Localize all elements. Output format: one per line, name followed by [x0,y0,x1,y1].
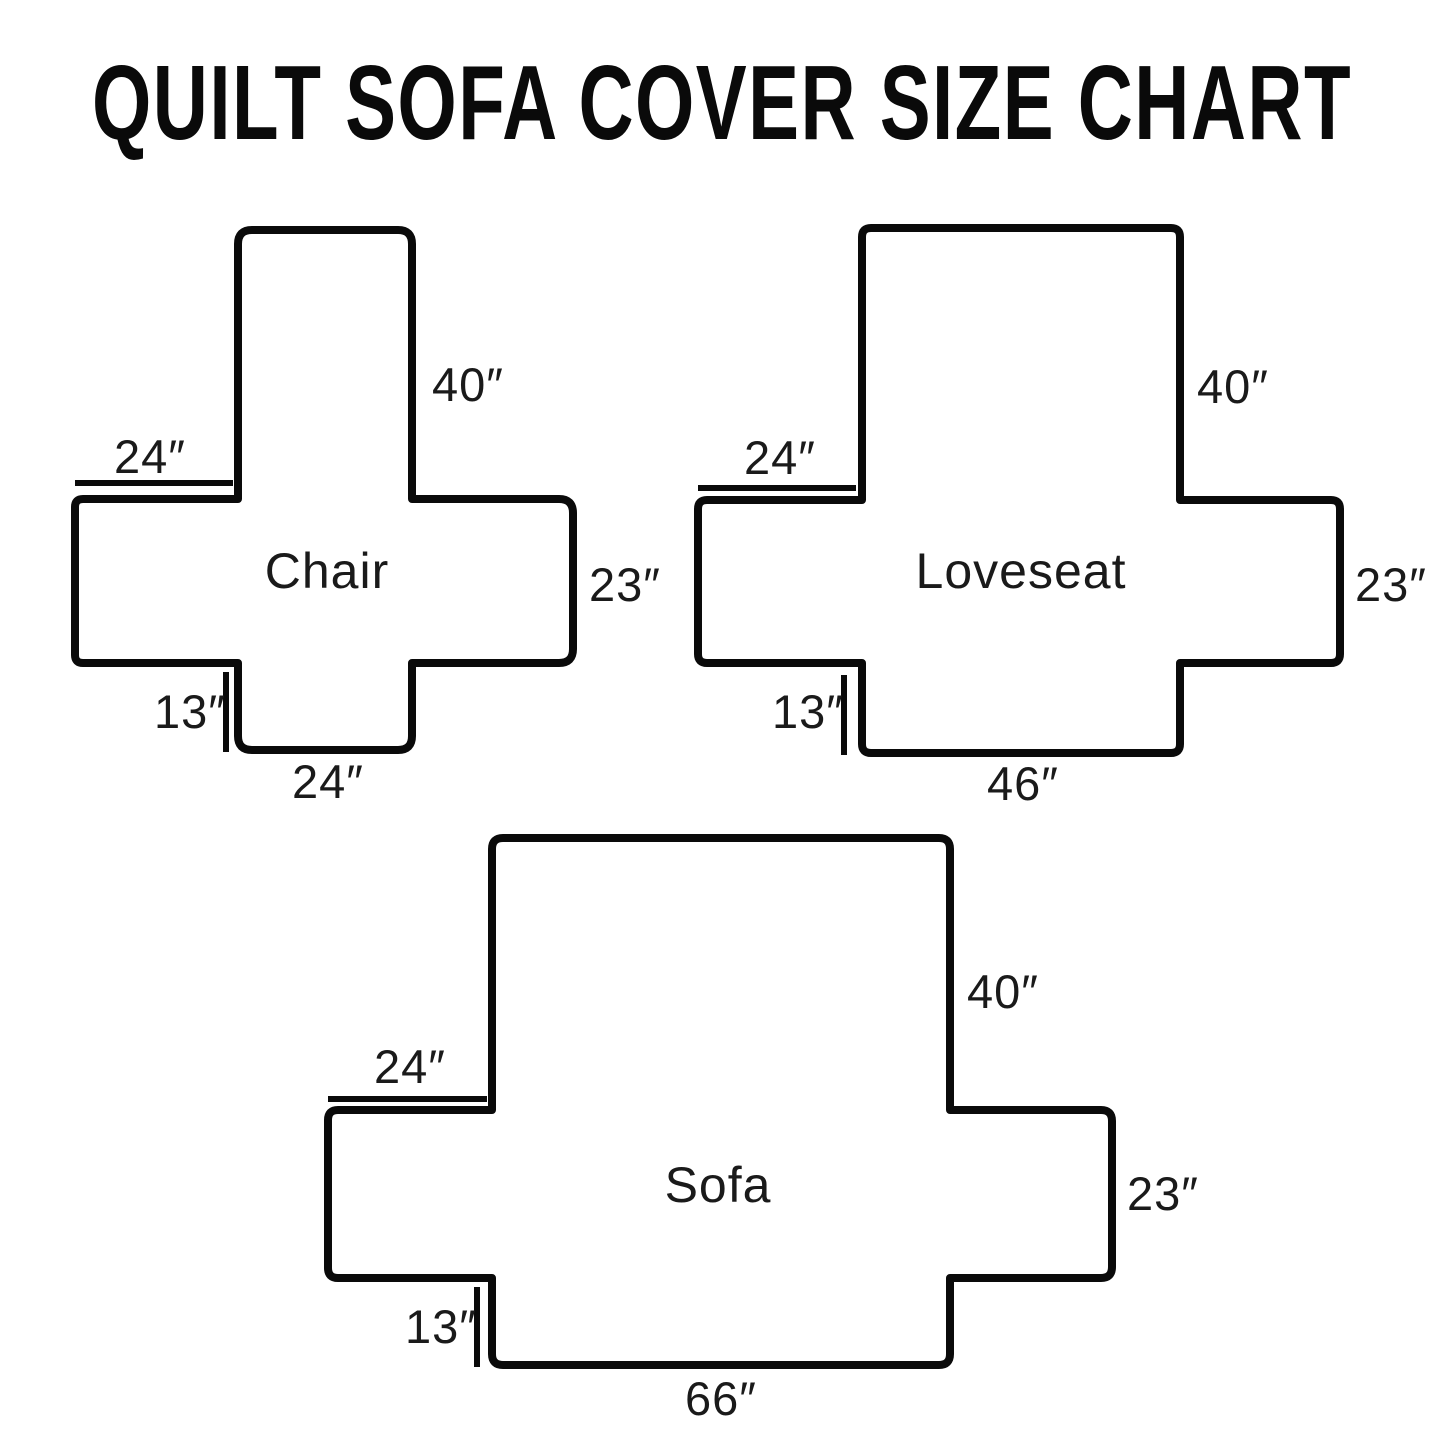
chair-name-label: Chair [265,543,389,599]
size-chart-page: QUILT SOFA COVER SIZE CHART 40″24″Chair2… [0,0,1445,1435]
page-title: QUILT SOFA COVER SIZE CHART [92,43,1352,162]
sofa-name-label: Sofa [665,1157,772,1213]
chair-front-skirt-height-label: 13″ [154,685,226,738]
chair-bottom-width-label: 24″ [292,755,364,808]
loveseat-diagram: 40″24″Loveseat23″13″46″ [698,228,1427,810]
size-chart-canvas: QUILT SOFA COVER SIZE CHART 40″24″Chair2… [0,0,1445,1435]
sofa-side-height-label: 23″ [1127,1167,1199,1220]
loveseat-side-height-label: 23″ [1355,558,1427,611]
chair-back-height-label: 40″ [432,358,504,411]
chair-top-arm-width-label: 24″ [114,430,186,483]
loveseat-top-arm-width-label: 24″ [744,431,816,484]
sofa-bottom-width-label: 66″ [685,1372,757,1425]
loveseat-back-height-label: 40″ [1197,360,1269,413]
sofa-back-height-label: 40″ [967,965,1039,1018]
loveseat-front-skirt-height-label: 13″ [772,685,844,738]
loveseat-bottom-width-label: 46″ [987,757,1059,810]
sofa-top-arm-width-label: 24″ [374,1040,446,1093]
loveseat-name-label: Loveseat [916,543,1127,599]
chair-cover-outline [75,230,573,750]
chair-diagram: 40″24″Chair23″13″24″ [75,230,661,808]
chair-side-height-label: 23″ [589,558,661,611]
sofa-front-skirt-height-label: 13″ [405,1300,477,1353]
sofa-diagram: 40″24″Sofa23″13″66″ [328,838,1199,1425]
